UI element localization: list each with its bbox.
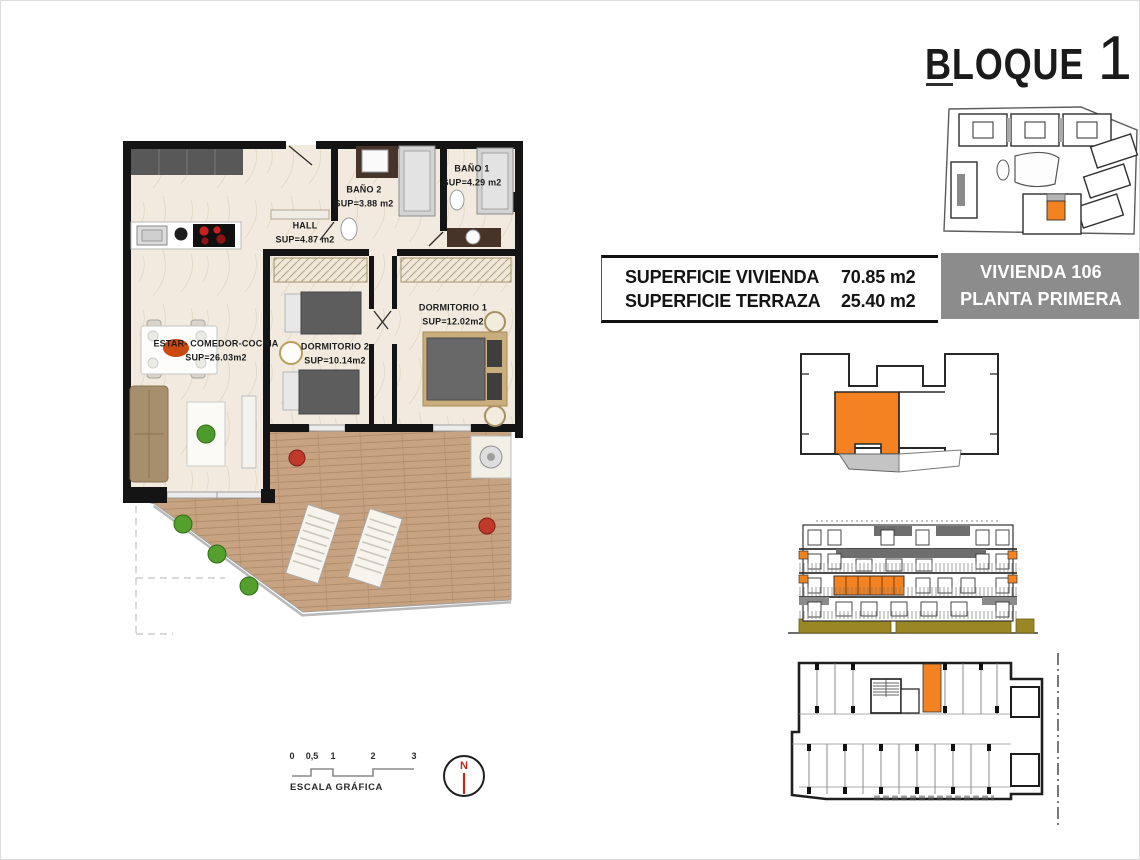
room-label-hall: HALL SUP=4.87 m2 <box>276 220 335 247</box>
scale-tick: 1 <box>330 751 335 761</box>
room-label-dormitorio1: DORMITORIO 1 SUP=12.02m2 <box>419 302 487 329</box>
unit-number: VIVIENDA 106 <box>941 259 1140 286</box>
surface-label: SUPERFICIE VIVIENDA <box>625 267 841 288</box>
room-label-dormitorio2: DORMITORIO 2 SUP=10.14m2 <box>301 341 369 368</box>
surface-row: SUPERFICIE VIVIENDA 70.85 m2 <box>602 267 938 288</box>
adjacent-terrace <box>899 450 961 472</box>
room-label-bano2: BAÑO 2 SUP=3.88 m2 <box>335 184 394 211</box>
room-label-estar: ESTAR- COMEDOR-COCINA SUP=26.03m2 <box>153 338 278 365</box>
garage-plan <box>779 649 1079 834</box>
surface-row: SUPERFICIE TERRAZA 25.40 m2 <box>602 291 938 312</box>
room-area: SUP=10.14m2 <box>301 354 369 368</box>
plant-pot <box>197 425 215 443</box>
room-name: BAÑO 2 <box>335 184 394 198</box>
building-elevation <box>786 513 1041 641</box>
unit-floor: PLANTA PRIMERA <box>941 286 1140 313</box>
surface-value: 25.40 m2 <box>841 291 915 312</box>
room-label-bano1: BAÑO 1 SUP=4.29 m2 <box>443 163 502 190</box>
room-name: DORMITORIO 2 <box>301 341 369 355</box>
tv-bench <box>242 396 256 468</box>
scale-tick: 3 <box>411 751 416 761</box>
toilet <box>450 190 464 210</box>
title-underline <box>926 83 953 86</box>
kitchen-hob <box>193 224 235 247</box>
roof-pergola <box>936 526 970 536</box>
frying-pan <box>175 228 188 241</box>
site-building-left <box>951 162 977 218</box>
site-pool <box>1015 152 1059 186</box>
balcony-band-gray <box>836 549 986 558</box>
apartment-floor-plan: ESTAR- COMEDOR-COCINA SUP=26.03m2 DORMIT… <box>113 134 533 709</box>
nightstand <box>485 312 505 332</box>
block-number: 1 <box>1098 23 1132 94</box>
site-connector <box>1007 118 1011 142</box>
scale-tick: 0,5 <box>306 751 319 761</box>
room-area: SUP=26.03m2 <box>153 351 278 365</box>
room-name: ESTAR- COMEDOR-COCINA <box>153 338 278 352</box>
plan-sheet: ESTAR- COMEDOR-COCINA SUP=26.03m2 DORMIT… <box>0 0 1140 860</box>
wardrobe <box>274 258 367 282</box>
surface-value: 70.85 m2 <box>841 267 915 288</box>
room-area: SUP=4.29 m2 <box>443 176 502 190</box>
room-area: SUP=3.88 m2 <box>335 197 394 211</box>
site-connector <box>1059 118 1063 142</box>
hall-sideboard <box>271 210 329 219</box>
compass-north-label: N <box>460 760 468 772</box>
site-plan <box>923 104 1140 242</box>
site-small-structure <box>997 160 1009 180</box>
scale-bar-profile <box>281 762 451 780</box>
key-plan <box>793 346 1008 478</box>
unit-location-marker <box>1047 201 1065 220</box>
unit-id-panel: VIVIENDA 106 PLANTA PRIMERA <box>941 253 1140 319</box>
room-name: DORMITORIO 1 <box>419 302 487 316</box>
nightstand <box>280 342 302 364</box>
sink <box>466 230 480 244</box>
room-area: SUP=12.02m2 <box>419 315 487 329</box>
scale-tick: 0 <box>289 751 294 761</box>
single-bed <box>299 370 359 414</box>
nightstand <box>485 406 505 426</box>
room-name: BAÑO 1 <box>443 163 502 177</box>
sink <box>362 150 388 172</box>
highlighted-storage-unit <box>923 664 941 712</box>
graphic-scale: 0 0,5 1 2 3 ESCALA GRÁFICA <box>281 751 451 801</box>
north-compass: N <box>438 751 490 803</box>
unit-terrace <box>839 454 899 472</box>
site-buildings-top-row <box>959 114 1111 146</box>
toilet <box>341 218 357 240</box>
elevator-shaft <box>901 689 919 713</box>
site-building-highlighted <box>1023 194 1081 234</box>
scale-tick: 2 <box>370 751 375 761</box>
single-bed <box>301 292 361 334</box>
wardrobe <box>401 258 511 282</box>
room-name: HALL <box>276 220 335 234</box>
surface-label: SUPERFICIE TERRAZA <box>625 291 841 312</box>
scale-label: ESCALA GRÁFICA <box>290 782 383 793</box>
surface-info-panel: SUPERFICIE VIVIENDA 70.85 m2 SUPERFICIE … <box>601 255 938 323</box>
room-area: SUP=4.87 m2 <box>276 233 335 247</box>
highlighted-unit <box>835 392 899 454</box>
